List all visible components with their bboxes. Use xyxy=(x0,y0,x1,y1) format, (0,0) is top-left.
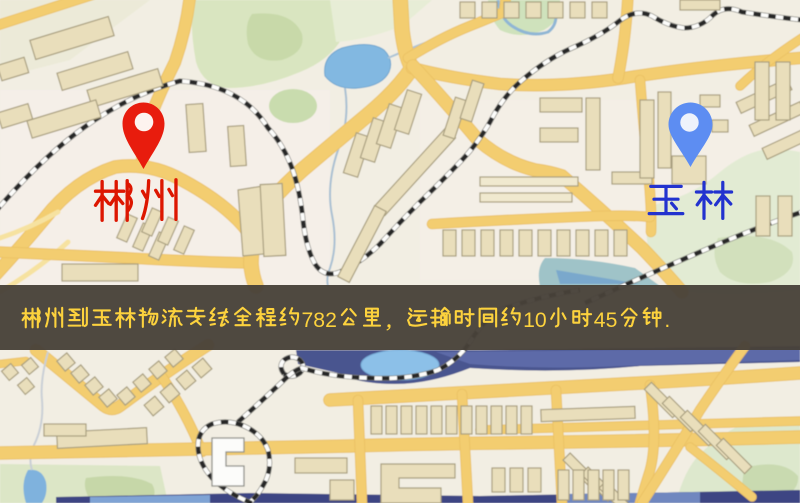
svg-text:.: . xyxy=(664,309,670,332)
svg-text:45: 45 xyxy=(594,309,618,332)
svg-text:782: 782 xyxy=(302,309,337,332)
svg-text:10: 10 xyxy=(523,309,547,332)
